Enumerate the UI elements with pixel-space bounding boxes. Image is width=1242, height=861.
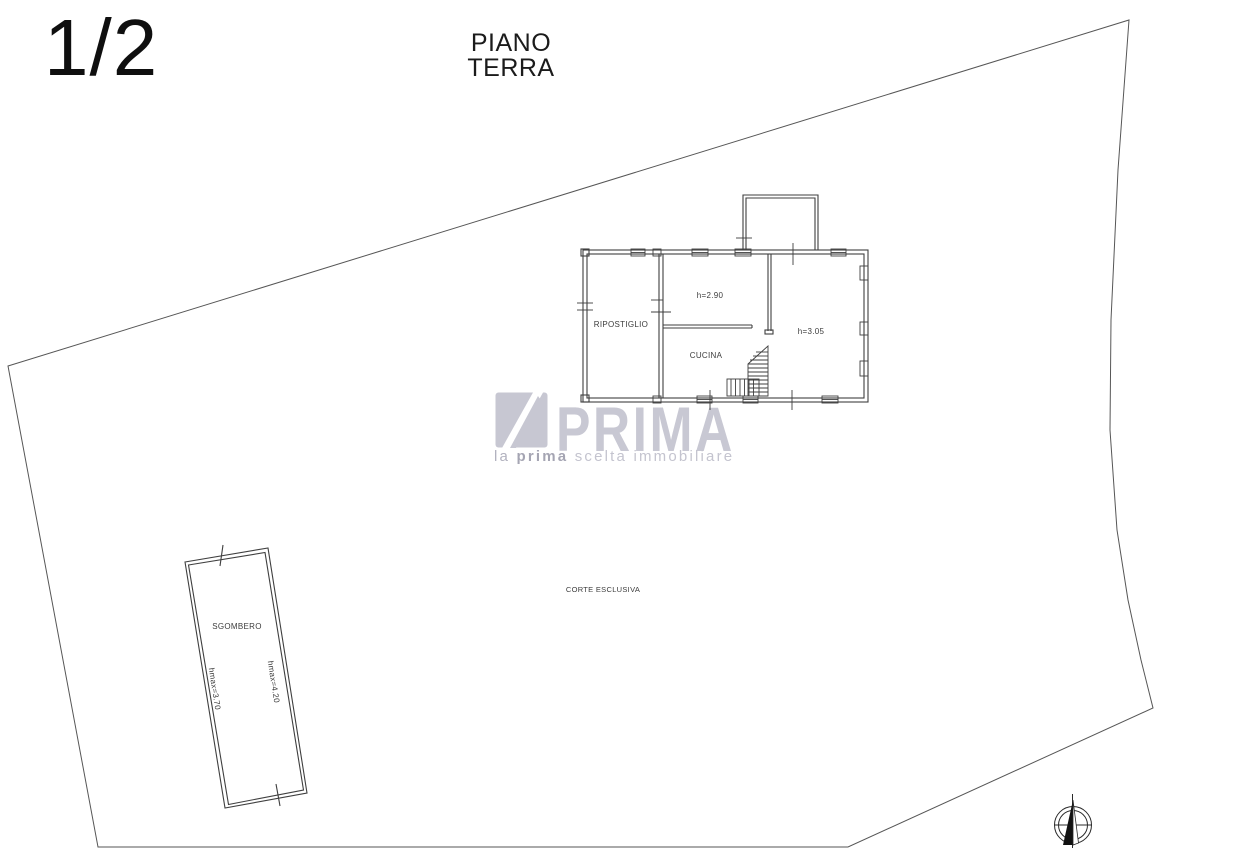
height-note-right-room: h=3.05	[786, 328, 836, 336]
plan-labels: 1/2 PIANO TERRA RIPOSTIGLIO h=2.90 CUCIN…	[0, 0, 1242, 861]
room-label-sgombero: SGOMBERO	[197, 623, 277, 631]
sheet-number: 1/2	[44, 8, 158, 88]
height-note-cucina: h=2.90	[687, 292, 733, 300]
label-corte-esclusiva: CORTE ESCLUSIVA	[553, 586, 653, 594]
page-title: PIANO TERRA	[431, 31, 591, 81]
height-note-sgombero-left: hmax=3.70	[205, 659, 222, 720]
height-note-sgombero-right: hmax=4.20	[264, 652, 281, 713]
floor-plan-sheet: PRIMA la prima scelta immobiliare	[0, 0, 1242, 861]
room-label-cucina: CUCINA	[681, 352, 731, 360]
room-label-ripostiglio: RIPOSTIGLIO	[580, 321, 662, 329]
